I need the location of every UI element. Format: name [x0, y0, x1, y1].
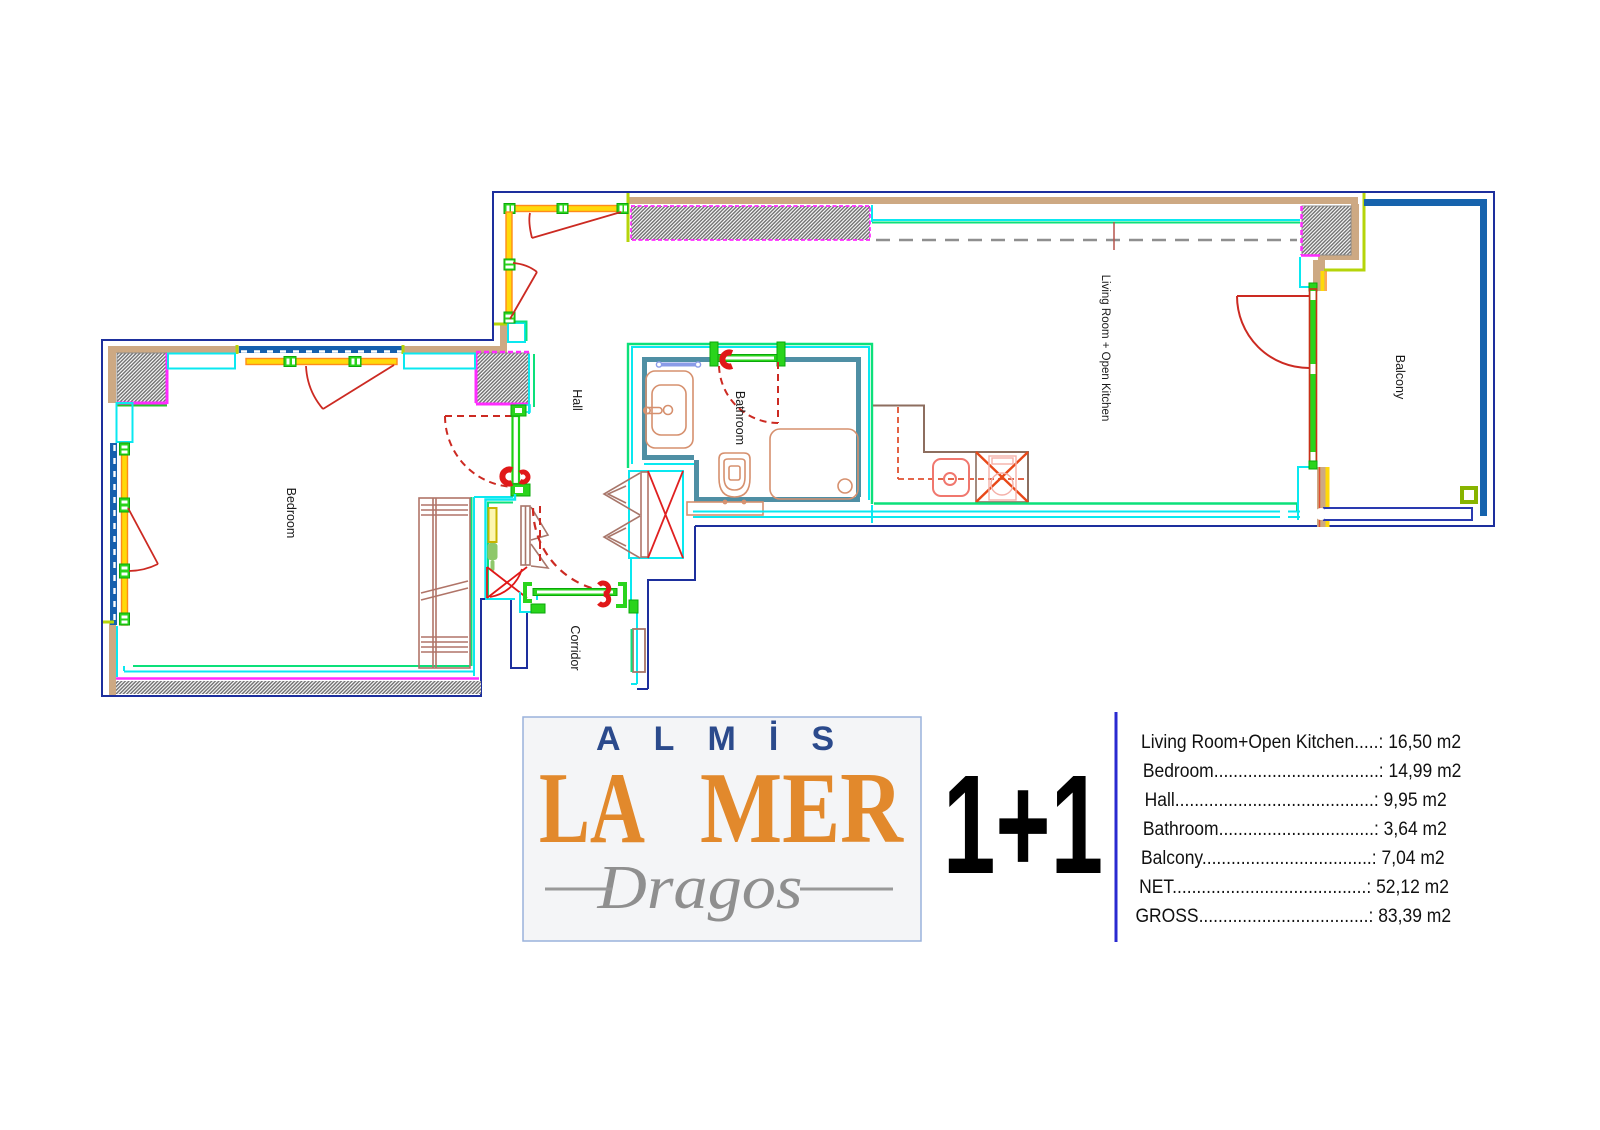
svg-text:Bedroom.......................: Bedroom.................................…	[1143, 759, 1462, 781]
svg-text:Living Room+Open Kitchen.....:: Living Room+Open Kitchen.....: 16,50 m2	[1141, 730, 1461, 752]
svg-text:Hall: Hall	[570, 389, 584, 411]
svg-text:1+1: 1+1	[943, 746, 1103, 903]
svg-text:Dragos: Dragos	[596, 854, 802, 922]
svg-text:MER: MER	[700, 752, 904, 865]
svg-text:Corridor: Corridor	[568, 625, 582, 670]
svg-text:Balcony.......................: Balcony.................................…	[1141, 846, 1445, 868]
svg-text:NET...........................: NET.....................................…	[1139, 875, 1449, 897]
svg-text:LA: LA	[539, 752, 645, 865]
svg-text:GROSS.........................: GROSS...................................…	[1135, 904, 1451, 926]
svg-text:Hall..........................: Hall....................................…	[1145, 788, 1447, 810]
svg-text:Living Room + Open Kitchen: Living Room + Open Kitchen	[1099, 275, 1111, 422]
svg-text:Bedroom: Bedroom	[284, 488, 298, 539]
svg-text:Bathroom......................: Bathroom................................…	[1143, 817, 1447, 839]
svg-text:Bathroom: Bathroom	[733, 391, 747, 445]
svg-text:Balcony: Balcony	[1393, 355, 1407, 400]
